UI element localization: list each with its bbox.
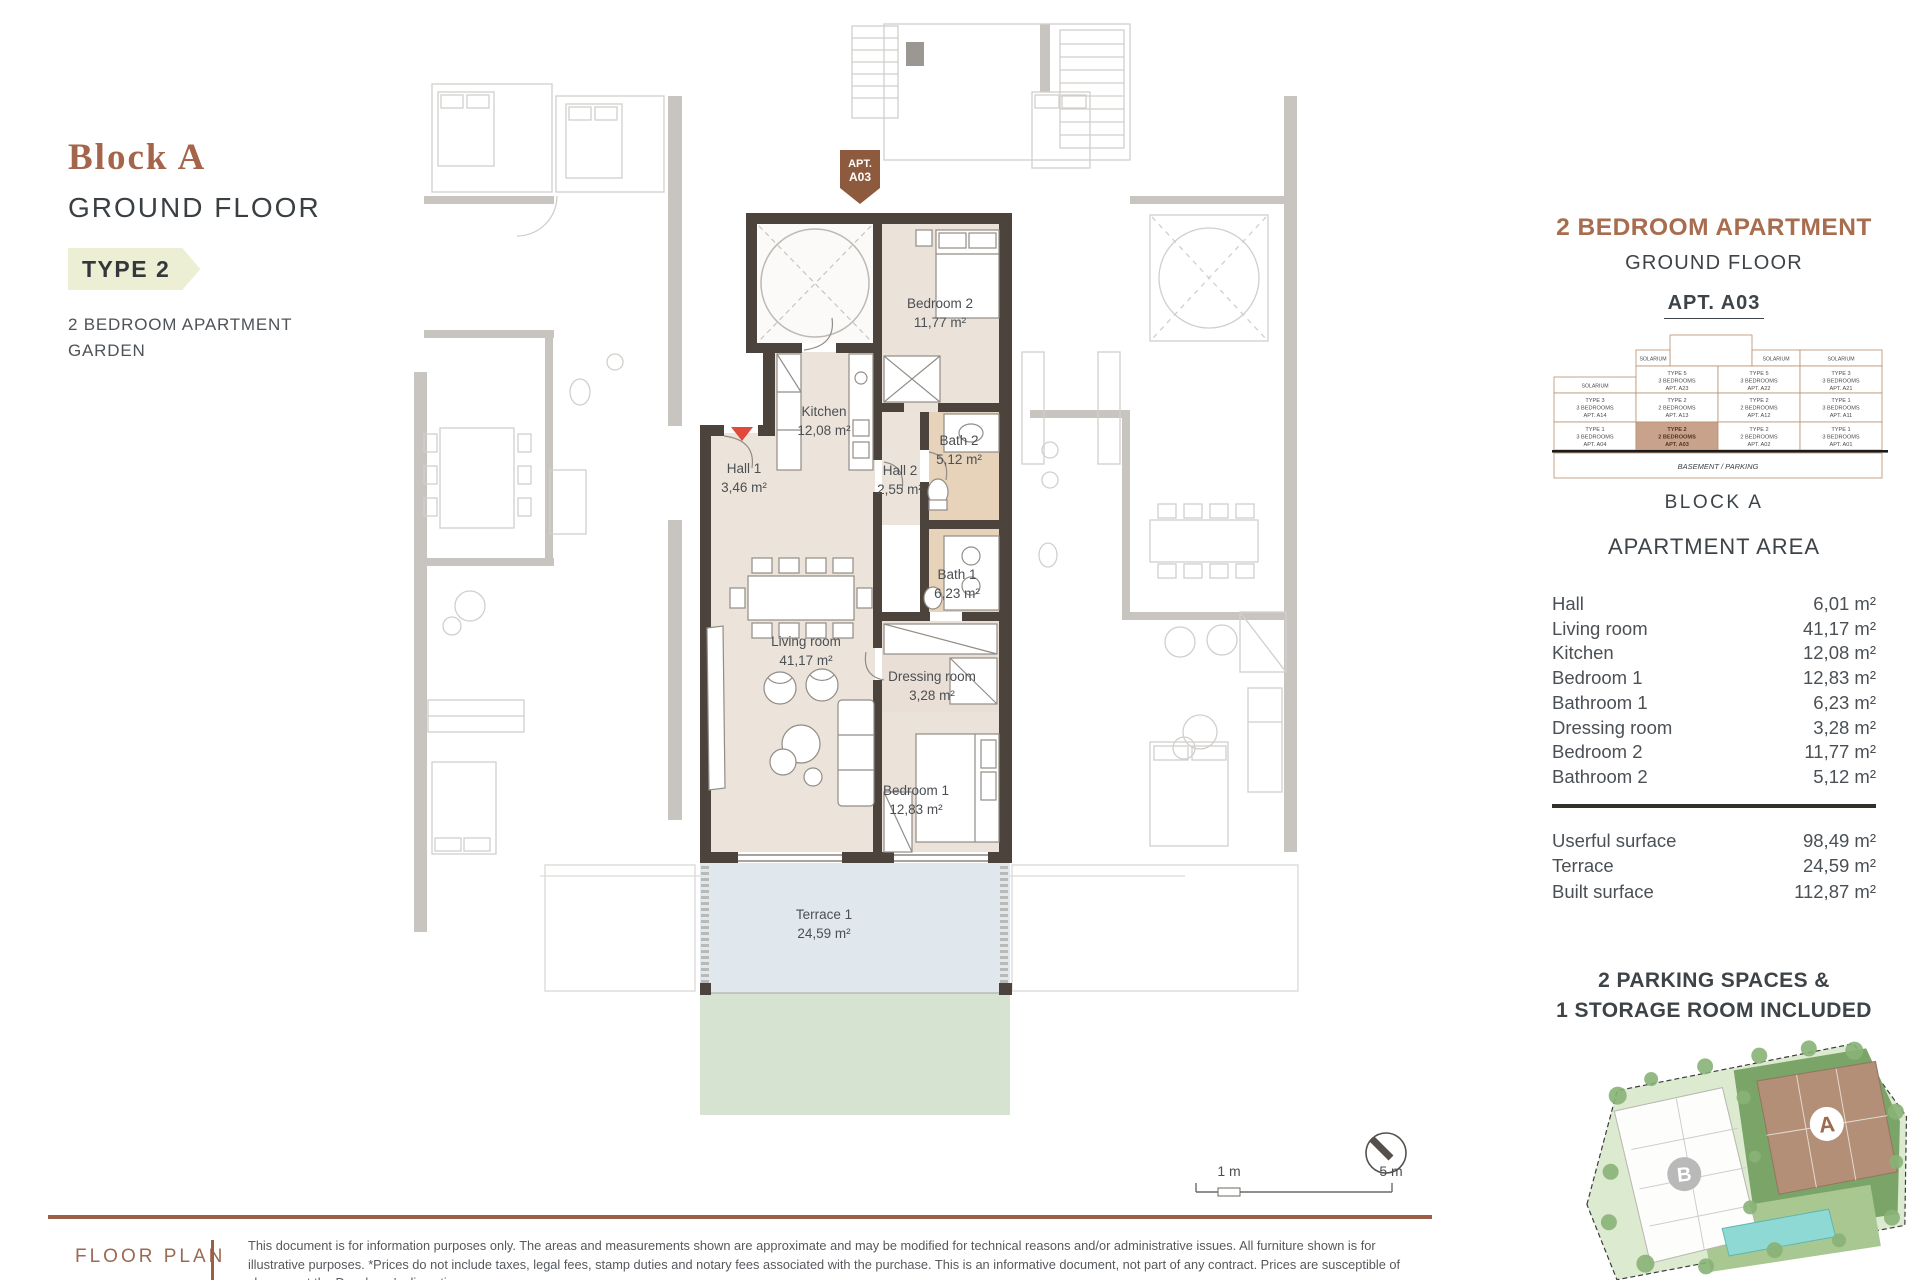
stack-text: TYPE 1 — [1585, 427, 1604, 433]
stack-text: APT. A22 — [1747, 386, 1770, 392]
room-label-bath1: Bath 1 — [937, 567, 976, 582]
stack-text: BASEMENT / PARKING — [1678, 462, 1759, 471]
stack-text: APT. A01 — [1829, 442, 1852, 448]
footer-label: FLOOR PLAN — [75, 1246, 225, 1268]
block-title: Block A — [68, 136, 206, 179]
stack-text: 3 BEDROOMS — [1822, 379, 1860, 385]
apartment-subtitle: 2 BEDROOM APARTMENT GARDEN — [68, 312, 292, 364]
area-row-label: Hall — [1552, 592, 1584, 617]
room-label-living: Living room — [771, 634, 841, 649]
stack-text: TYPE 1 — [1831, 427, 1850, 433]
footer-divider — [211, 1240, 214, 1280]
stack-text: TYPE 1 — [1831, 398, 1850, 404]
stack-text: TYPE 5 — [1749, 371, 1768, 377]
stack-text: 2 BEDROOMS — [1658, 435, 1696, 441]
room-label-dressing: Dressing room — [888, 669, 976, 684]
total-row-label: Terrace — [1552, 853, 1614, 878]
total-row: Built surface112,87 m² — [1552, 879, 1876, 904]
svg-text:12,08 m²: 12,08 m² — [797, 423, 851, 438]
svg-text:3,46 m²: 3,46 m² — [721, 480, 767, 495]
total-row: Userful surface98,49 m² — [1552, 828, 1876, 853]
stack-text: 2 BEDROOMS — [1740, 435, 1778, 441]
area-row-value: 12,83 m² — [1803, 666, 1876, 691]
scale-1m: 1 m — [1217, 1163, 1240, 1179]
area-row: Bedroom 211,77 m² — [1552, 740, 1876, 765]
room-label-bedroom2: Bedroom 2 — [907, 296, 973, 311]
totals-divider — [1552, 804, 1876, 808]
sidebar-title: 2 BEDROOM APARTMENT — [1540, 214, 1888, 242]
footer-rule — [48, 1215, 1432, 1219]
stack-text: APT. A02 — [1747, 442, 1770, 448]
stack-text: SOLARIUM — [1639, 357, 1666, 363]
area-row: Bathroom 16,23 m² — [1552, 691, 1876, 716]
parking-note: 2 PARKING SPACES & 1 STORAGE ROOM INCLUD… — [1540, 966, 1888, 1026]
stack-text: 3 BEDROOMS — [1576, 406, 1614, 412]
area-row-label: Kitchen — [1552, 641, 1614, 666]
total-row-value: 112,87 m² — [1794, 879, 1876, 904]
type-badge: TYPE 2 — [68, 248, 200, 290]
block-label: BLOCK A — [1540, 492, 1888, 514]
stack-text: TYPE 2 — [1667, 398, 1686, 404]
stack-roof-notch — [1670, 335, 1752, 366]
area-row: Bedroom 112,83 m² — [1552, 666, 1876, 691]
area-row-label: Bathroom 2 — [1552, 765, 1648, 790]
sidebar-floor: GROUND FLOOR — [1540, 252, 1888, 275]
scale-5m: 5 m — [1379, 1163, 1402, 1179]
stack-text: 3 BEDROOMS — [1822, 406, 1860, 412]
sidebar-apt-number: APT. A03 — [1540, 292, 1888, 319]
area-row-label: Living room — [1552, 617, 1648, 642]
total-row-value: 24,59 m² — [1803, 853, 1876, 878]
svg-text:3,28 m²: 3,28 m² — [909, 688, 955, 703]
area-row-value: 6,01 m² — [1813, 592, 1876, 617]
svg-text:2,55 m²: 2,55 m² — [877, 482, 923, 497]
totals-list: Userful surface98,49 m²Terrace24,59 m²Bu… — [1552, 828, 1876, 904]
area-row-value: 41,17 m² — [1803, 617, 1876, 642]
svg-text:A03: A03 — [849, 170, 871, 184]
total-row-value: 98,49 m² — [1803, 828, 1876, 853]
stack-text: APT. A23 — [1665, 386, 1688, 392]
room-label-hall2: Hall 2 — [883, 463, 918, 478]
room-label-bedroom1: Bedroom 1 — [883, 783, 949, 798]
terrace-floor — [700, 863, 1010, 993]
stack-text: APT. A04 — [1583, 442, 1606, 448]
stack-text: SOLARIUM — [1581, 384, 1608, 390]
svg-text:6,23 m²: 6,23 m² — [934, 586, 980, 601]
apt-a03-marker: APT. A03 — [840, 150, 880, 204]
total-row-label: Built surface — [1552, 879, 1654, 904]
apartment-area-title: APARTMENT AREA — [1540, 534, 1888, 560]
stack-text: 3 BEDROOMS — [1576, 435, 1614, 441]
info-sidebar: 2 BEDROOM APARTMENT GROUND FLOOR APT. A0… — [1540, 0, 1920, 1280]
stack-text: 3 BEDROOMS — [1740, 379, 1778, 385]
elevator-shaft — [906, 42, 924, 66]
area-row-label: Bathroom 1 — [1552, 691, 1648, 716]
footer-disclaimer: This document is for information purpose… — [248, 1237, 1434, 1280]
garden-area — [700, 993, 1010, 1115]
stack-text: APT. A21 — [1829, 386, 1852, 392]
area-row: Bathroom 25,12 m² — [1552, 765, 1876, 790]
building-stack-diagram: SOLARIUMSOLARIUMSOLARIUMSOLARIUMTYPE 53 … — [1546, 330, 1894, 482]
stack-text: SOLARIUM — [1827, 357, 1854, 363]
svg-text:12,83 m²: 12,83 m² — [889, 802, 943, 817]
svg-text:41,17 m²: 41,17 m² — [779, 653, 833, 668]
area-row: Hall6,01 m² — [1552, 592, 1876, 617]
stack-text: SOLARIUM — [1762, 357, 1789, 363]
floor-plan-page: Bedroom 2 11,77 m² Kitchen 12,08 m² Hall… — [0, 0, 1920, 1280]
svg-text:24,59 m²: 24,59 m² — [797, 926, 851, 941]
floor-title: GROUND FLOOR — [68, 192, 321, 224]
area-row-value: 3,28 m² — [1813, 716, 1876, 741]
total-row: Terrace24,59 m² — [1552, 853, 1876, 878]
area-row-label: Bedroom 1 — [1552, 666, 1643, 691]
area-list: Hall6,01 m²Living room41,17 m²Kitchen12,… — [1552, 592, 1876, 790]
block-b-letter: B — [1676, 1163, 1693, 1186]
stack-text: APT. A11 — [1830, 413, 1853, 419]
stack-text: 3 BEDROOMS — [1658, 379, 1696, 385]
site-plan-map: B A — [1565, 1038, 1920, 1280]
stack-text: 3 BEDROOMS — [1822, 435, 1860, 441]
area-row-label: Dressing room — [1552, 716, 1672, 741]
room-label-bath2: Bath 2 — [939, 433, 978, 448]
stack-text: TYPE 2 — [1749, 427, 1768, 433]
stack-text: APT. A12 — [1747, 413, 1770, 419]
unit-a03: Bedroom 2 11,77 m² Kitchen 12,08 m² Hall… — [700, 150, 1012, 1115]
area-row: Living room41,17 m² — [1552, 617, 1876, 642]
room-label-hall1: Hall 1 — [727, 461, 762, 476]
stack-text: APT. A13 — [1665, 413, 1688, 419]
svg-text:APT.: APT. — [848, 158, 872, 170]
stack-text: TYPE 5 — [1667, 371, 1686, 377]
stack-text: APT. A14 — [1583, 413, 1606, 419]
room-label-kitchen: Kitchen — [801, 404, 846, 419]
block-a-letter: A — [1818, 1111, 1837, 1138]
area-row: Dressing room3,28 m² — [1552, 716, 1876, 741]
stack-text: TYPE 2 — [1667, 427, 1686, 433]
area-row-value: 5,12 m² — [1813, 765, 1876, 790]
stack-text: TYPE 2 — [1749, 398, 1768, 404]
area-row-label: Bedroom 2 — [1552, 740, 1643, 765]
stack-text: 2 BEDROOMS — [1658, 406, 1696, 412]
area-row-value: 6,23 m² — [1813, 691, 1876, 716]
stack-text: TYPE 3 — [1831, 371, 1850, 377]
stack-text: 2 BEDROOMS — [1740, 406, 1778, 412]
area-row: Kitchen12,08 m² — [1552, 641, 1876, 666]
stack-text: APT. A03 — [1665, 442, 1689, 448]
svg-text:5,12 m²: 5,12 m² — [936, 452, 982, 467]
room-label-terrace: Terrace 1 — [796, 907, 852, 922]
svg-text:11,77 m²: 11,77 m² — [914, 315, 967, 330]
stack-text: TYPE 3 — [1585, 398, 1604, 404]
stack-ground-line — [1552, 450, 1888, 453]
area-row-value: 12,08 m² — [1803, 641, 1876, 666]
total-row-label: Userful surface — [1552, 828, 1676, 853]
area-row-value: 11,77 m² — [1804, 740, 1876, 765]
